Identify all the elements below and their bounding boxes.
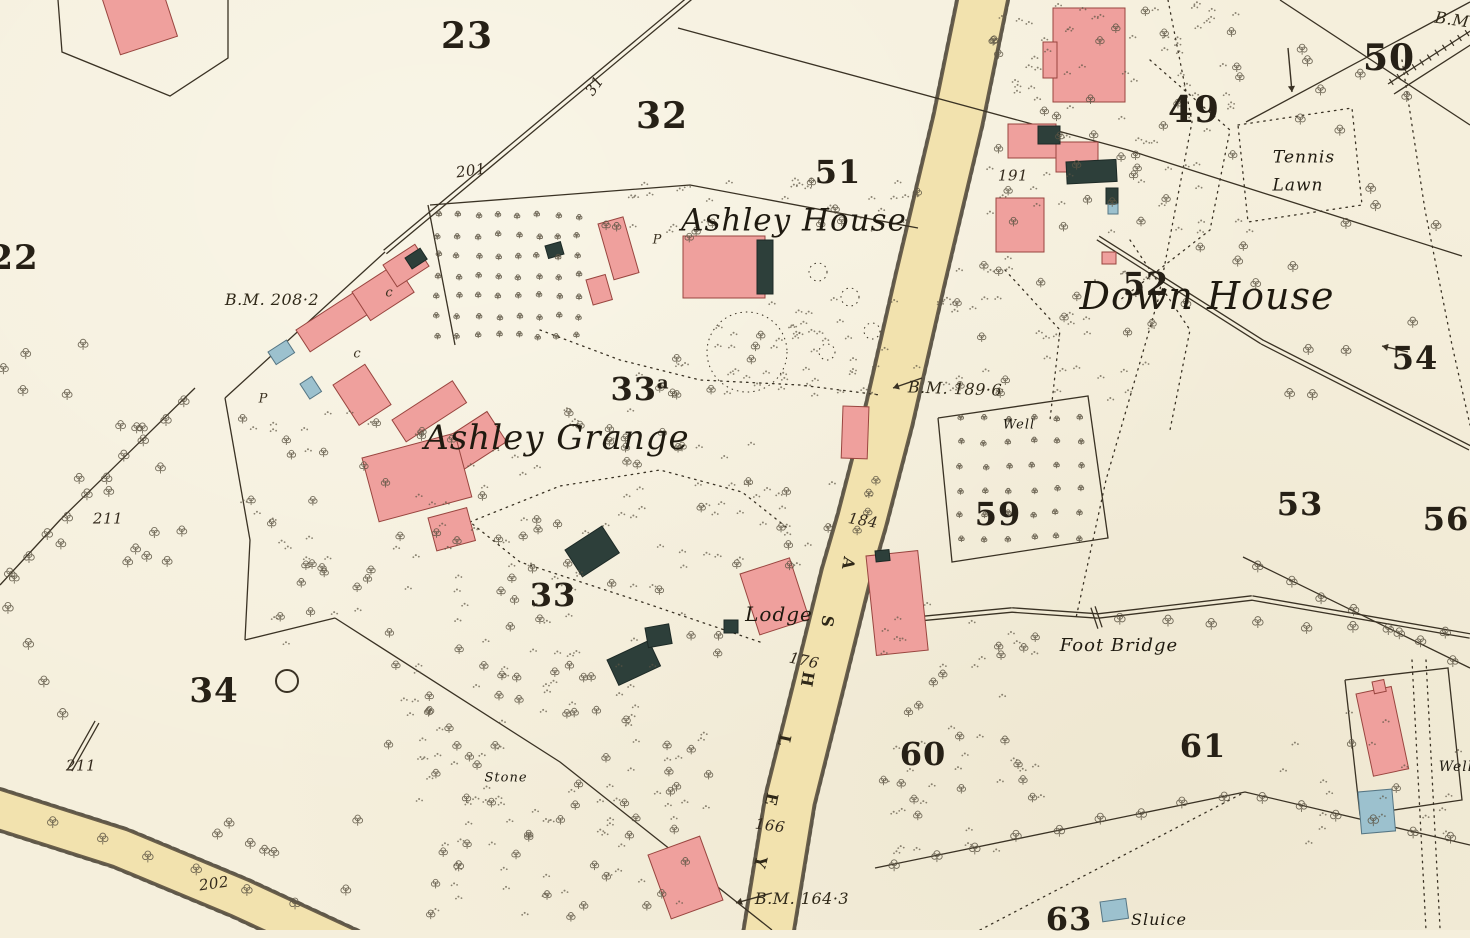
map-viewport[interactable]: 233251225049525433a595356333460616320131…	[0, 0, 1470, 930]
map-graphics	[0, 0, 1470, 930]
